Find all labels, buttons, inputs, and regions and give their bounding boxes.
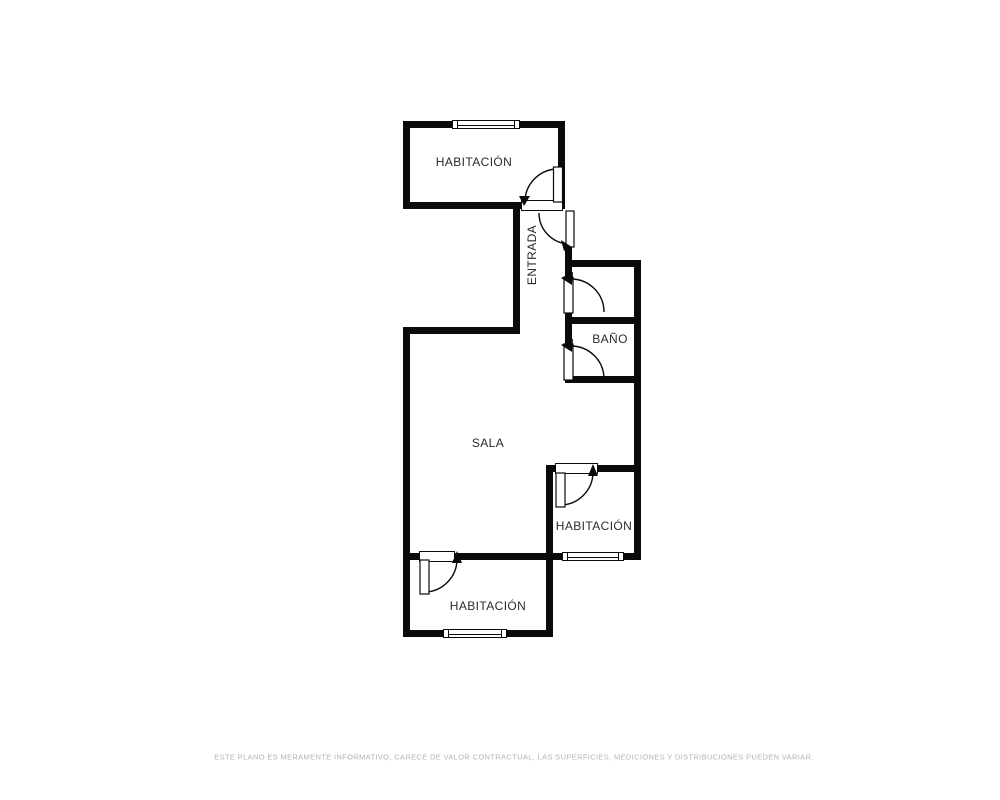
window xyxy=(443,629,507,638)
window-cap xyxy=(443,629,449,638)
room-label-entrance: ENTRADA xyxy=(525,225,539,285)
door-upper-room xyxy=(558,268,614,320)
window-cap xyxy=(562,552,568,561)
wall xyxy=(403,121,410,209)
wall xyxy=(403,327,520,334)
door-top-bedroom xyxy=(512,158,568,210)
window-pane xyxy=(444,634,506,635)
room-label-living: SALA xyxy=(472,436,504,450)
window-cap xyxy=(501,629,507,638)
window xyxy=(562,552,624,561)
room-label-bottom-bedroom: HABITACIÓN xyxy=(450,599,526,613)
disclaimer-text: ESTE PLANO ES MERAMENTE INFORMATIVO, CAR… xyxy=(214,753,813,762)
floor-plan: HABITACIÓN ENTRADA BAÑO SALA HABITACIÓN … xyxy=(0,0,1000,800)
door-mid-bedroom xyxy=(546,461,602,517)
window xyxy=(452,120,520,129)
window-cap xyxy=(452,120,458,129)
room-label-top-bedroom: HABITACIÓN xyxy=(436,155,512,169)
wall xyxy=(403,327,410,637)
wall xyxy=(634,260,641,560)
wall xyxy=(513,202,520,334)
window-pane xyxy=(563,557,623,558)
window-cap xyxy=(514,120,520,129)
window-cap xyxy=(618,552,624,561)
room-label-bathroom: BAÑO xyxy=(592,332,628,346)
room-label-mid-bedroom: HABITACIÓN xyxy=(556,519,632,533)
window-pane xyxy=(453,125,519,126)
door-bottom-bedroom xyxy=(410,548,466,604)
wall xyxy=(565,260,641,267)
